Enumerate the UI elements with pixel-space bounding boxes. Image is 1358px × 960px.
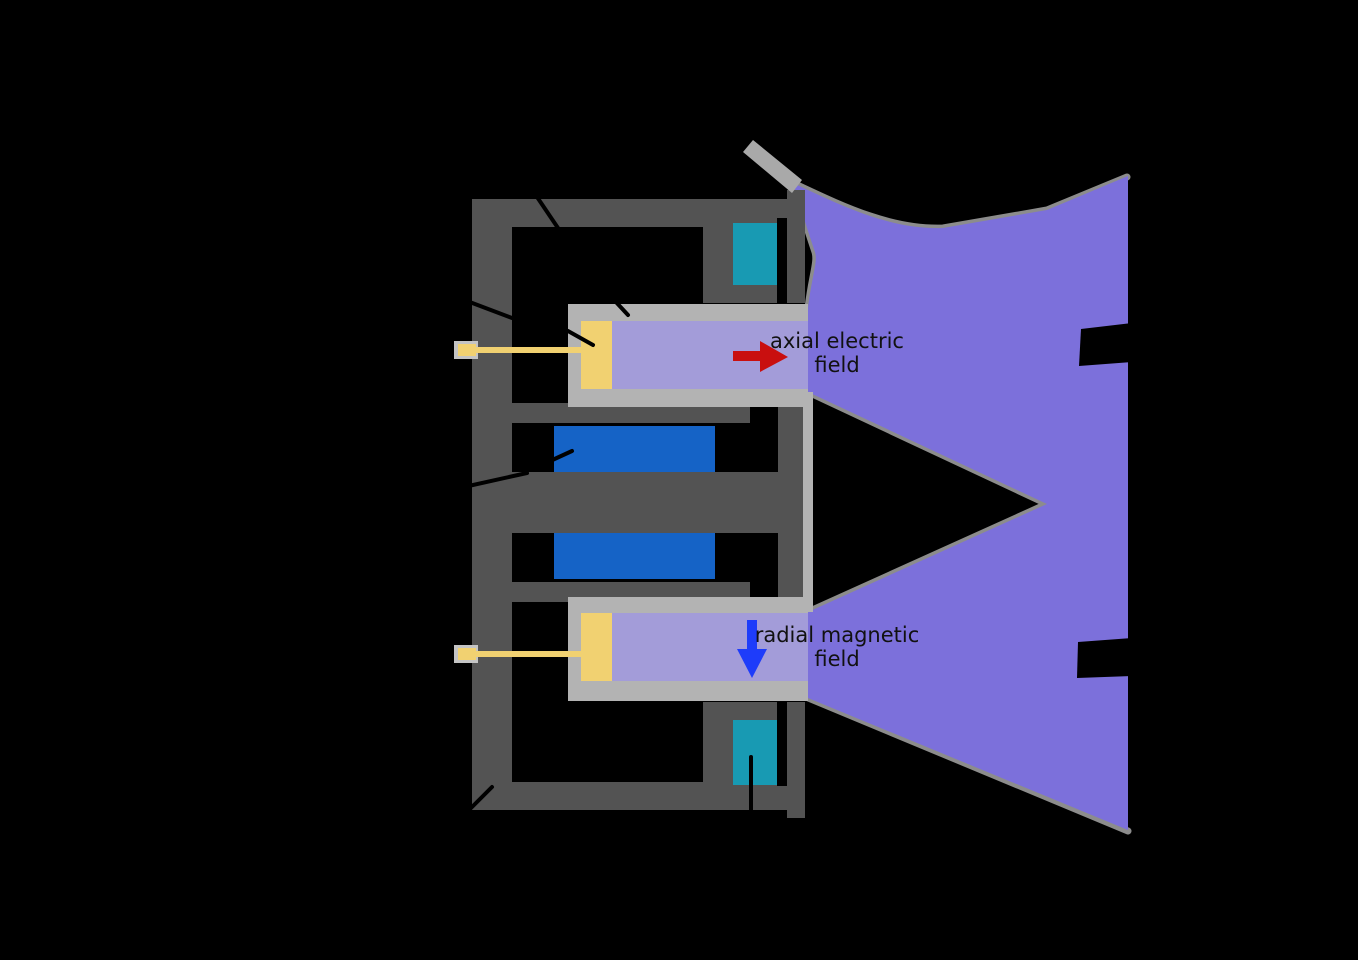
feed-line-tip-bottom xyxy=(458,648,476,660)
feed-line-top xyxy=(476,347,582,353)
cathode xyxy=(743,140,802,193)
magnetic-circuit-left-wall xyxy=(472,199,512,810)
beam-notch-top xyxy=(1079,323,1132,366)
coil-slot-top xyxy=(777,218,787,304)
beam-notch-bottom xyxy=(1077,638,1132,678)
coil-slot-bottom xyxy=(777,701,787,786)
outer-coil-top xyxy=(733,223,777,285)
outer-pole-tip-bottom xyxy=(787,806,805,818)
thruster-schematic-svg xyxy=(0,0,1358,960)
outer-coil-bottom xyxy=(733,720,777,785)
central-pole-column xyxy=(778,407,803,598)
central-core xyxy=(512,472,778,533)
anode-top xyxy=(581,321,612,389)
anode-bottom xyxy=(581,613,612,681)
inner-coil-top xyxy=(554,426,715,472)
hall-thruster-diagram: axial electric field radial magnetic fie… xyxy=(0,0,1358,960)
feed-line-bottom xyxy=(476,651,582,657)
outer-pole-tip-top xyxy=(787,190,805,202)
feed-line-tip-top xyxy=(458,344,476,356)
inner-coil-bottom xyxy=(554,533,715,579)
channel-interior-bottom xyxy=(581,613,808,681)
plasma-plume xyxy=(793,176,1128,830)
